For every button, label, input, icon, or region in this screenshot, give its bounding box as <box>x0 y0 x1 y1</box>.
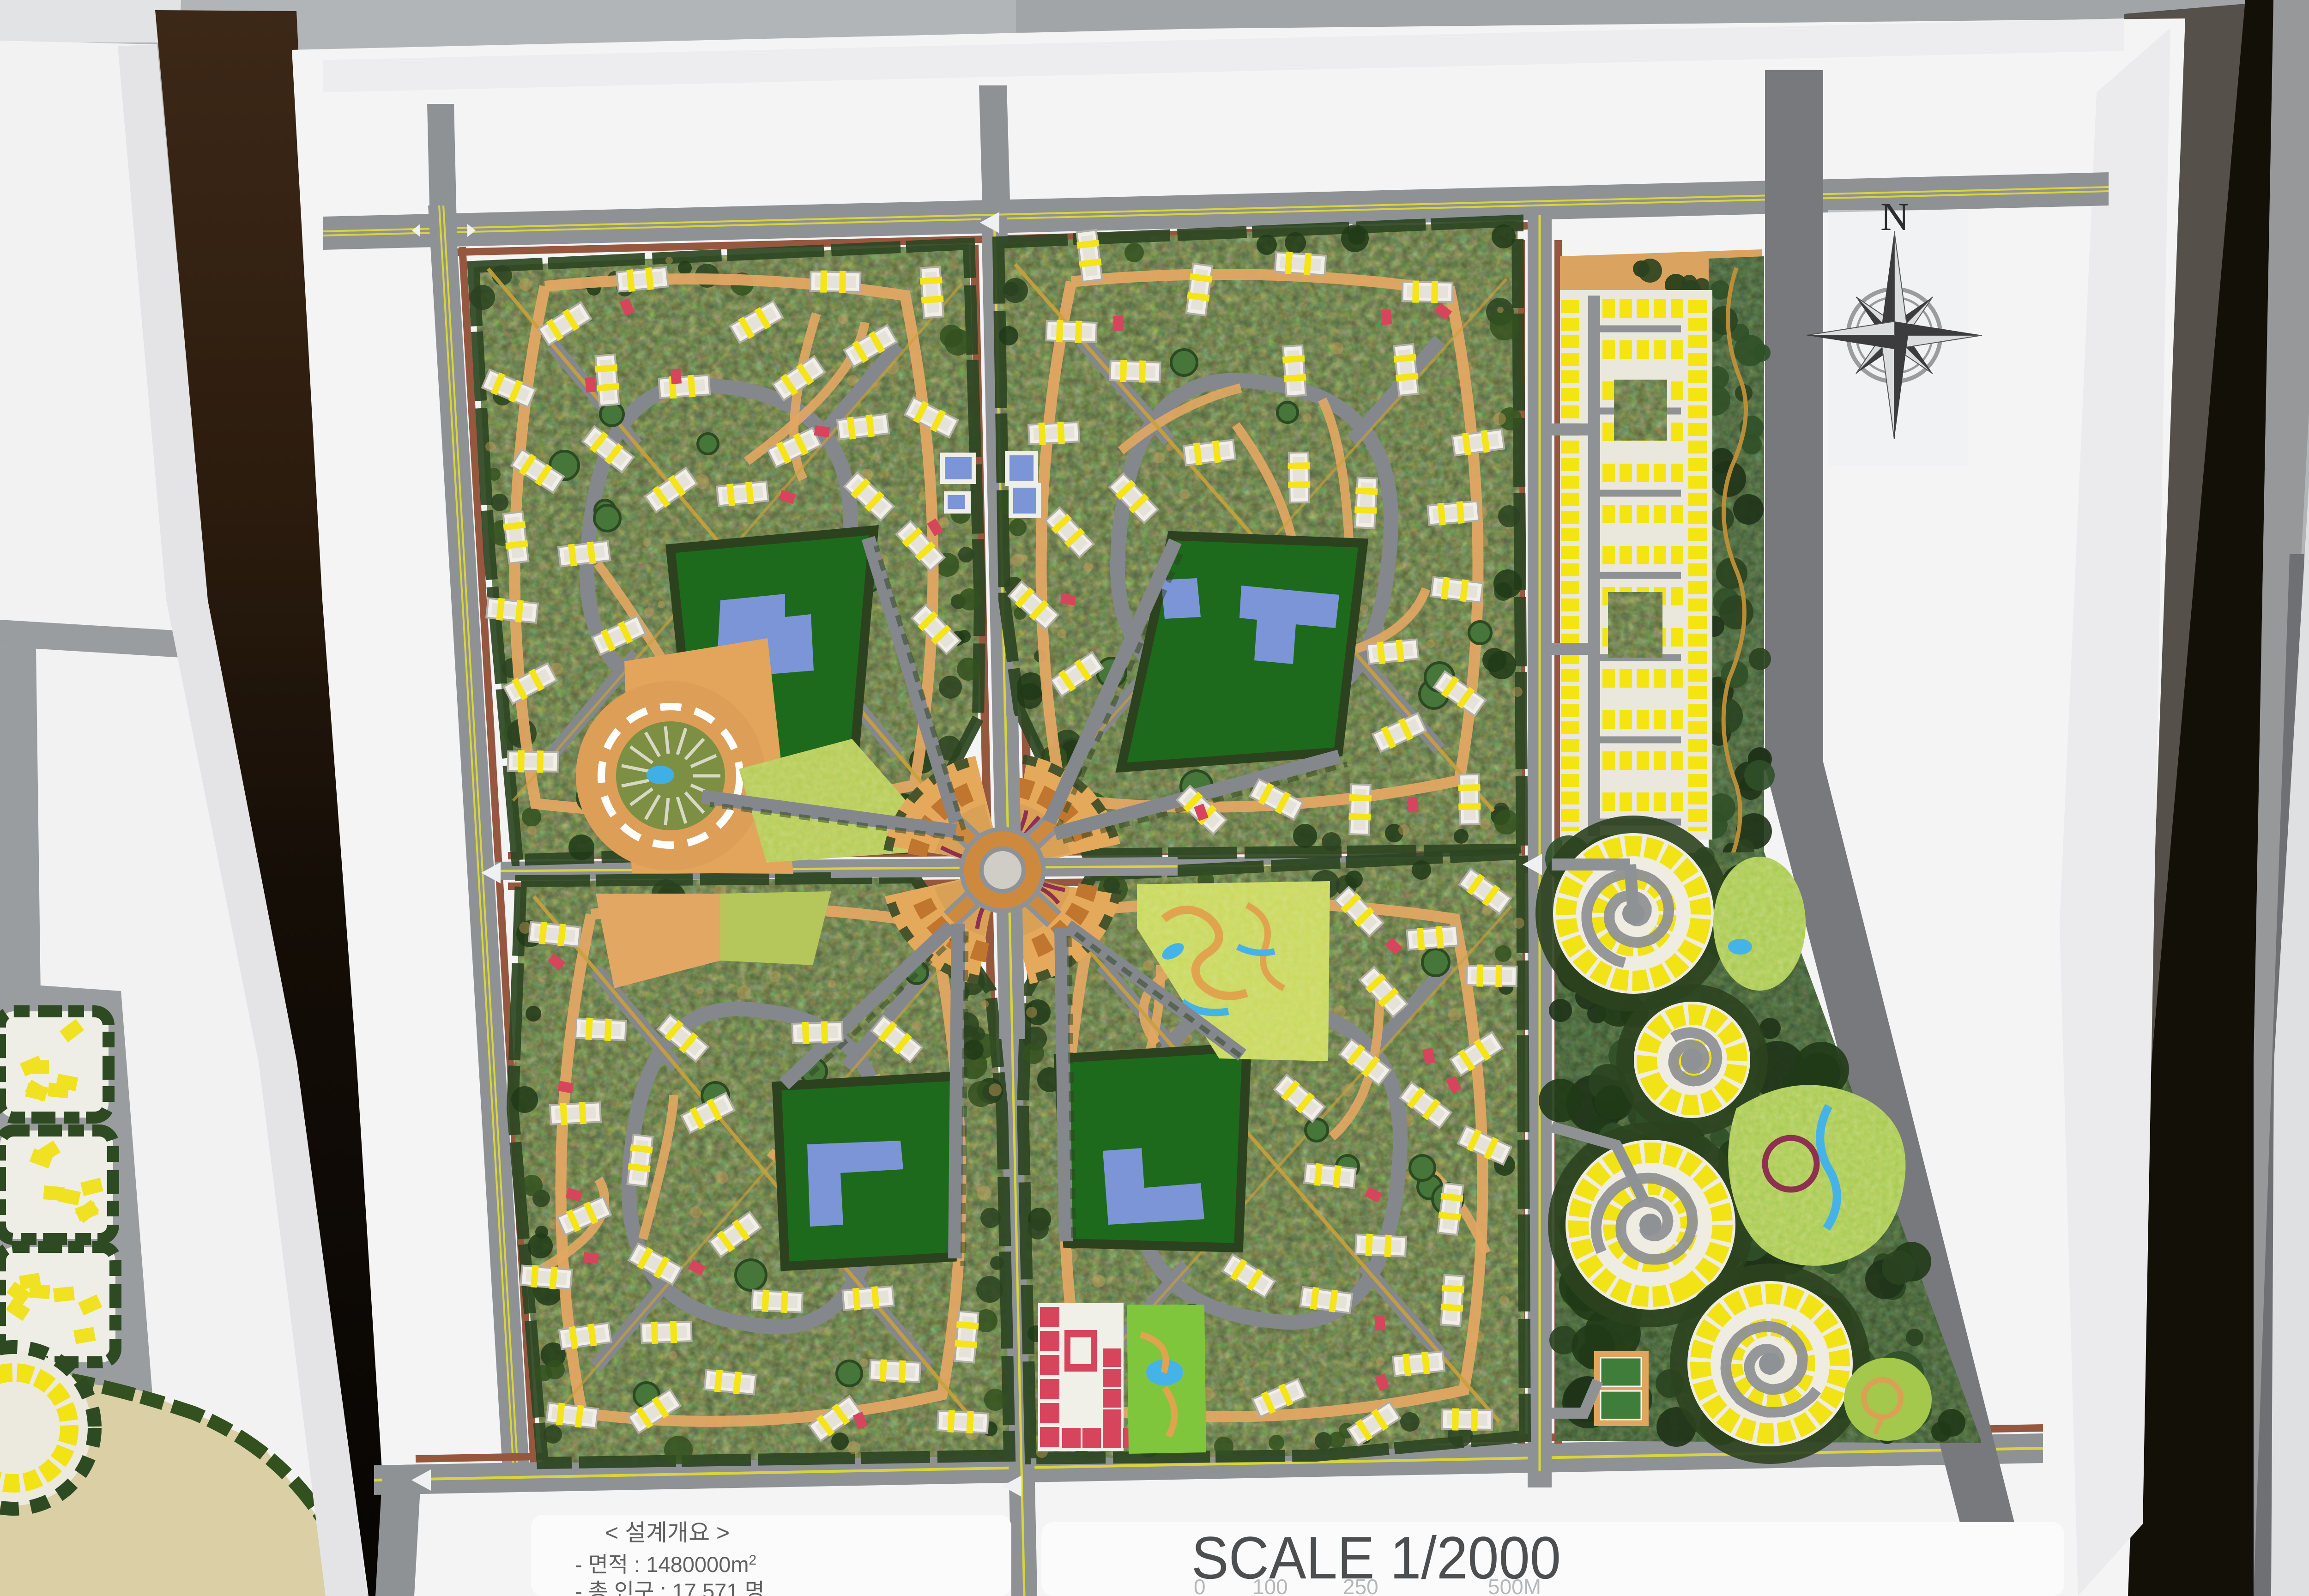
svg-text:< 설계개요 >: < 설계개요 > <box>605 1520 730 1546</box>
svg-text:100: 100 <box>1252 1575 1288 1596</box>
svg-text:250: 250 <box>1343 1575 1378 1596</box>
svg-text:500M: 500M <box>1488 1575 1541 1596</box>
svg-text:0: 0 <box>1194 1575 1206 1596</box>
svg-text:N: N <box>1880 194 1909 239</box>
svg-text:- 총 인구 : 17,571 명: - 총 인구 : 17,571 명 <box>575 1579 765 1596</box>
svg-text:- 면적 : 1480000m2: - 면적 : 1480000m2 <box>575 1552 756 1577</box>
